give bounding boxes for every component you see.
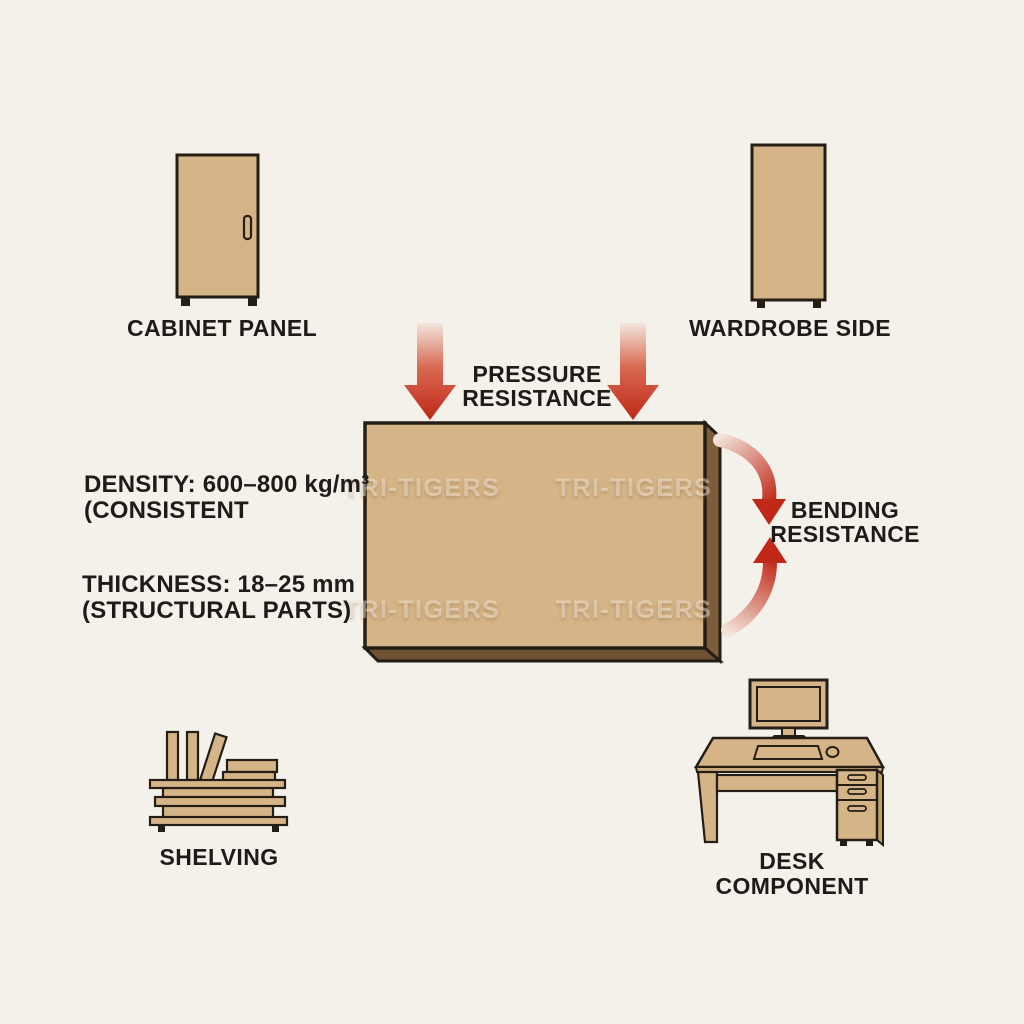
thickness-line2: (STRUCTURAL PARTS) <box>82 598 355 624</box>
density-line2: (CONSISTENT <box>84 498 369 524</box>
bending-line1: BENDING <box>740 498 950 522</box>
pressure-line2: RESISTANCE <box>432 386 642 410</box>
pressure-line1: PRESSURE <box>432 362 642 386</box>
thickness-line1: THICKNESS: 18–25 mm <box>82 572 355 598</box>
shelving-label: SHELVING <box>109 845 329 870</box>
cabinet-handle-icon <box>244 216 251 239</box>
cabinet-panel-label: CABINET PANEL <box>112 316 332 341</box>
pressure-resistance-caption: PRESSURE RESISTANCE <box>432 362 642 410</box>
particle-board-face <box>365 423 705 648</box>
bending-resistance-caption: BENDING RESISTANCE <box>740 498 950 546</box>
density-spec: DENSITY: 600–800 kg/m³ (CONSISTENT <box>84 472 369 524</box>
shelving-illustration <box>130 713 310 845</box>
keyboard-icon <box>754 746 822 759</box>
density-line1: DENSITY: 600–800 kg/m³ <box>84 472 369 498</box>
cabinet-panel-illustration <box>160 140 280 320</box>
center-board-illustration <box>340 300 940 680</box>
mouse-icon <box>827 747 839 757</box>
infographic-canvas: CABINET PANEL WARDROBE SIDE <box>0 0 1024 1024</box>
thickness-spec: THICKNESS: 18–25 mm (STRUCTURAL PARTS) <box>82 572 355 624</box>
bending-line2: RESISTANCE <box>740 522 950 546</box>
desk-illustration <box>690 675 890 850</box>
wardrobe-side-illustration <box>735 130 855 315</box>
bending-arrow-bottom-icon <box>728 537 787 630</box>
desk-component-label: DESK COMPONENT <box>682 849 902 899</box>
